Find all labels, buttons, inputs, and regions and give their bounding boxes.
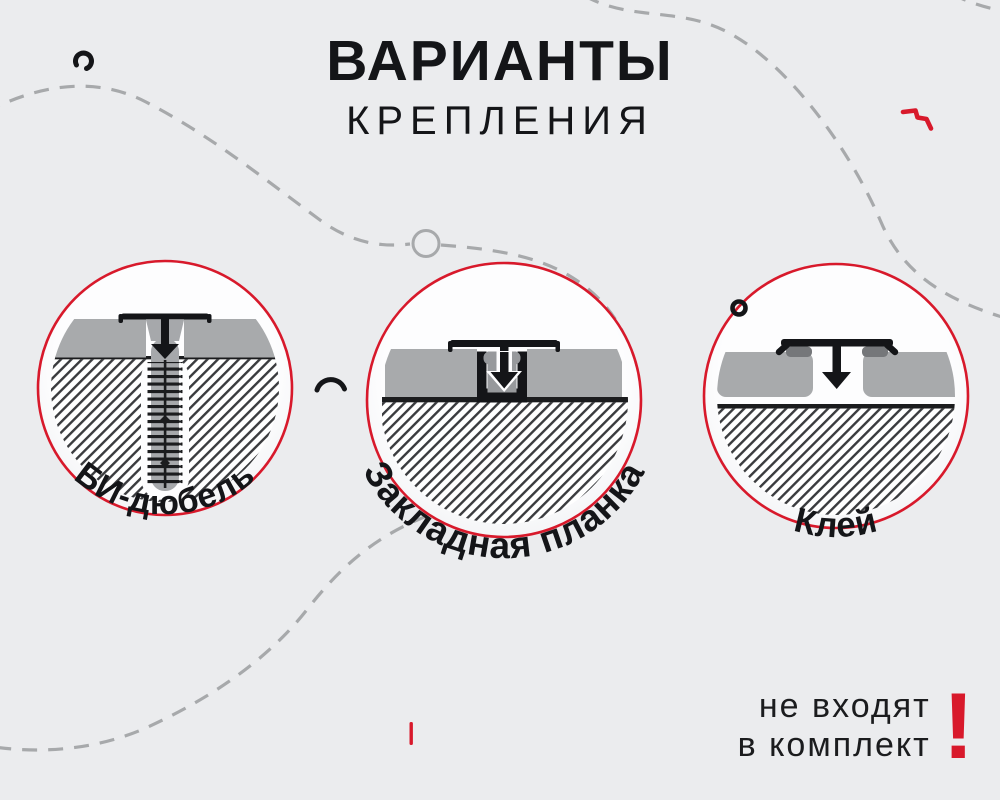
t-profile-stem	[161, 316, 169, 346]
substrate-edge	[710, 404, 962, 409]
down-arrow-shaft	[833, 346, 842, 373]
ring-ornament-icon	[413, 231, 439, 257]
page-title: ВАРИАНТЫ КРЕПЛЕНИЯ	[0, 28, 1000, 144]
panel-left	[717, 352, 813, 397]
t-profile-wing-left	[448, 341, 453, 352]
title-line-2: КРЕПЛЕНИЯ	[0, 99, 1000, 144]
panel-left	[385, 349, 477, 397]
mounting-option-bi-dowel: БИ-дюбель	[38, 261, 292, 522]
t-profile-bar	[781, 339, 893, 347]
t-profile-wing-right	[556, 341, 561, 352]
glue-diagram	[710, 339, 963, 533]
exclamation-icon: !	[943, 689, 974, 763]
down-arrow-shaft	[500, 352, 509, 373]
arc-ornament-icon	[317, 380, 345, 390]
note-line-1: не входят	[738, 687, 931, 726]
panel-right	[863, 352, 963, 397]
glue-blob-left	[786, 347, 812, 358]
dashed-corner-nub	[952, 0, 1000, 11]
option-label-text: Клей	[791, 500, 882, 545]
glue-blob-right	[862, 347, 888, 358]
note-text: не входят в комплект	[738, 687, 931, 765]
t-profile-wing-right	[207, 314, 212, 323]
note-line-2: в комплект	[738, 726, 931, 765]
panel-right	[527, 349, 622, 397]
title-line-1: ВАРИАНТЫ	[0, 28, 1000, 94]
t-profile-wing-left	[119, 314, 124, 323]
infographic-mounting-options: БИ-дюбель	[0, 0, 1000, 800]
mounting-option-glue: Клей	[704, 264, 968, 545]
red-tick-icon	[410, 722, 413, 745]
not-included-note: не входят в комплект !	[738, 687, 974, 765]
option-label: Клей	[791, 500, 882, 545]
